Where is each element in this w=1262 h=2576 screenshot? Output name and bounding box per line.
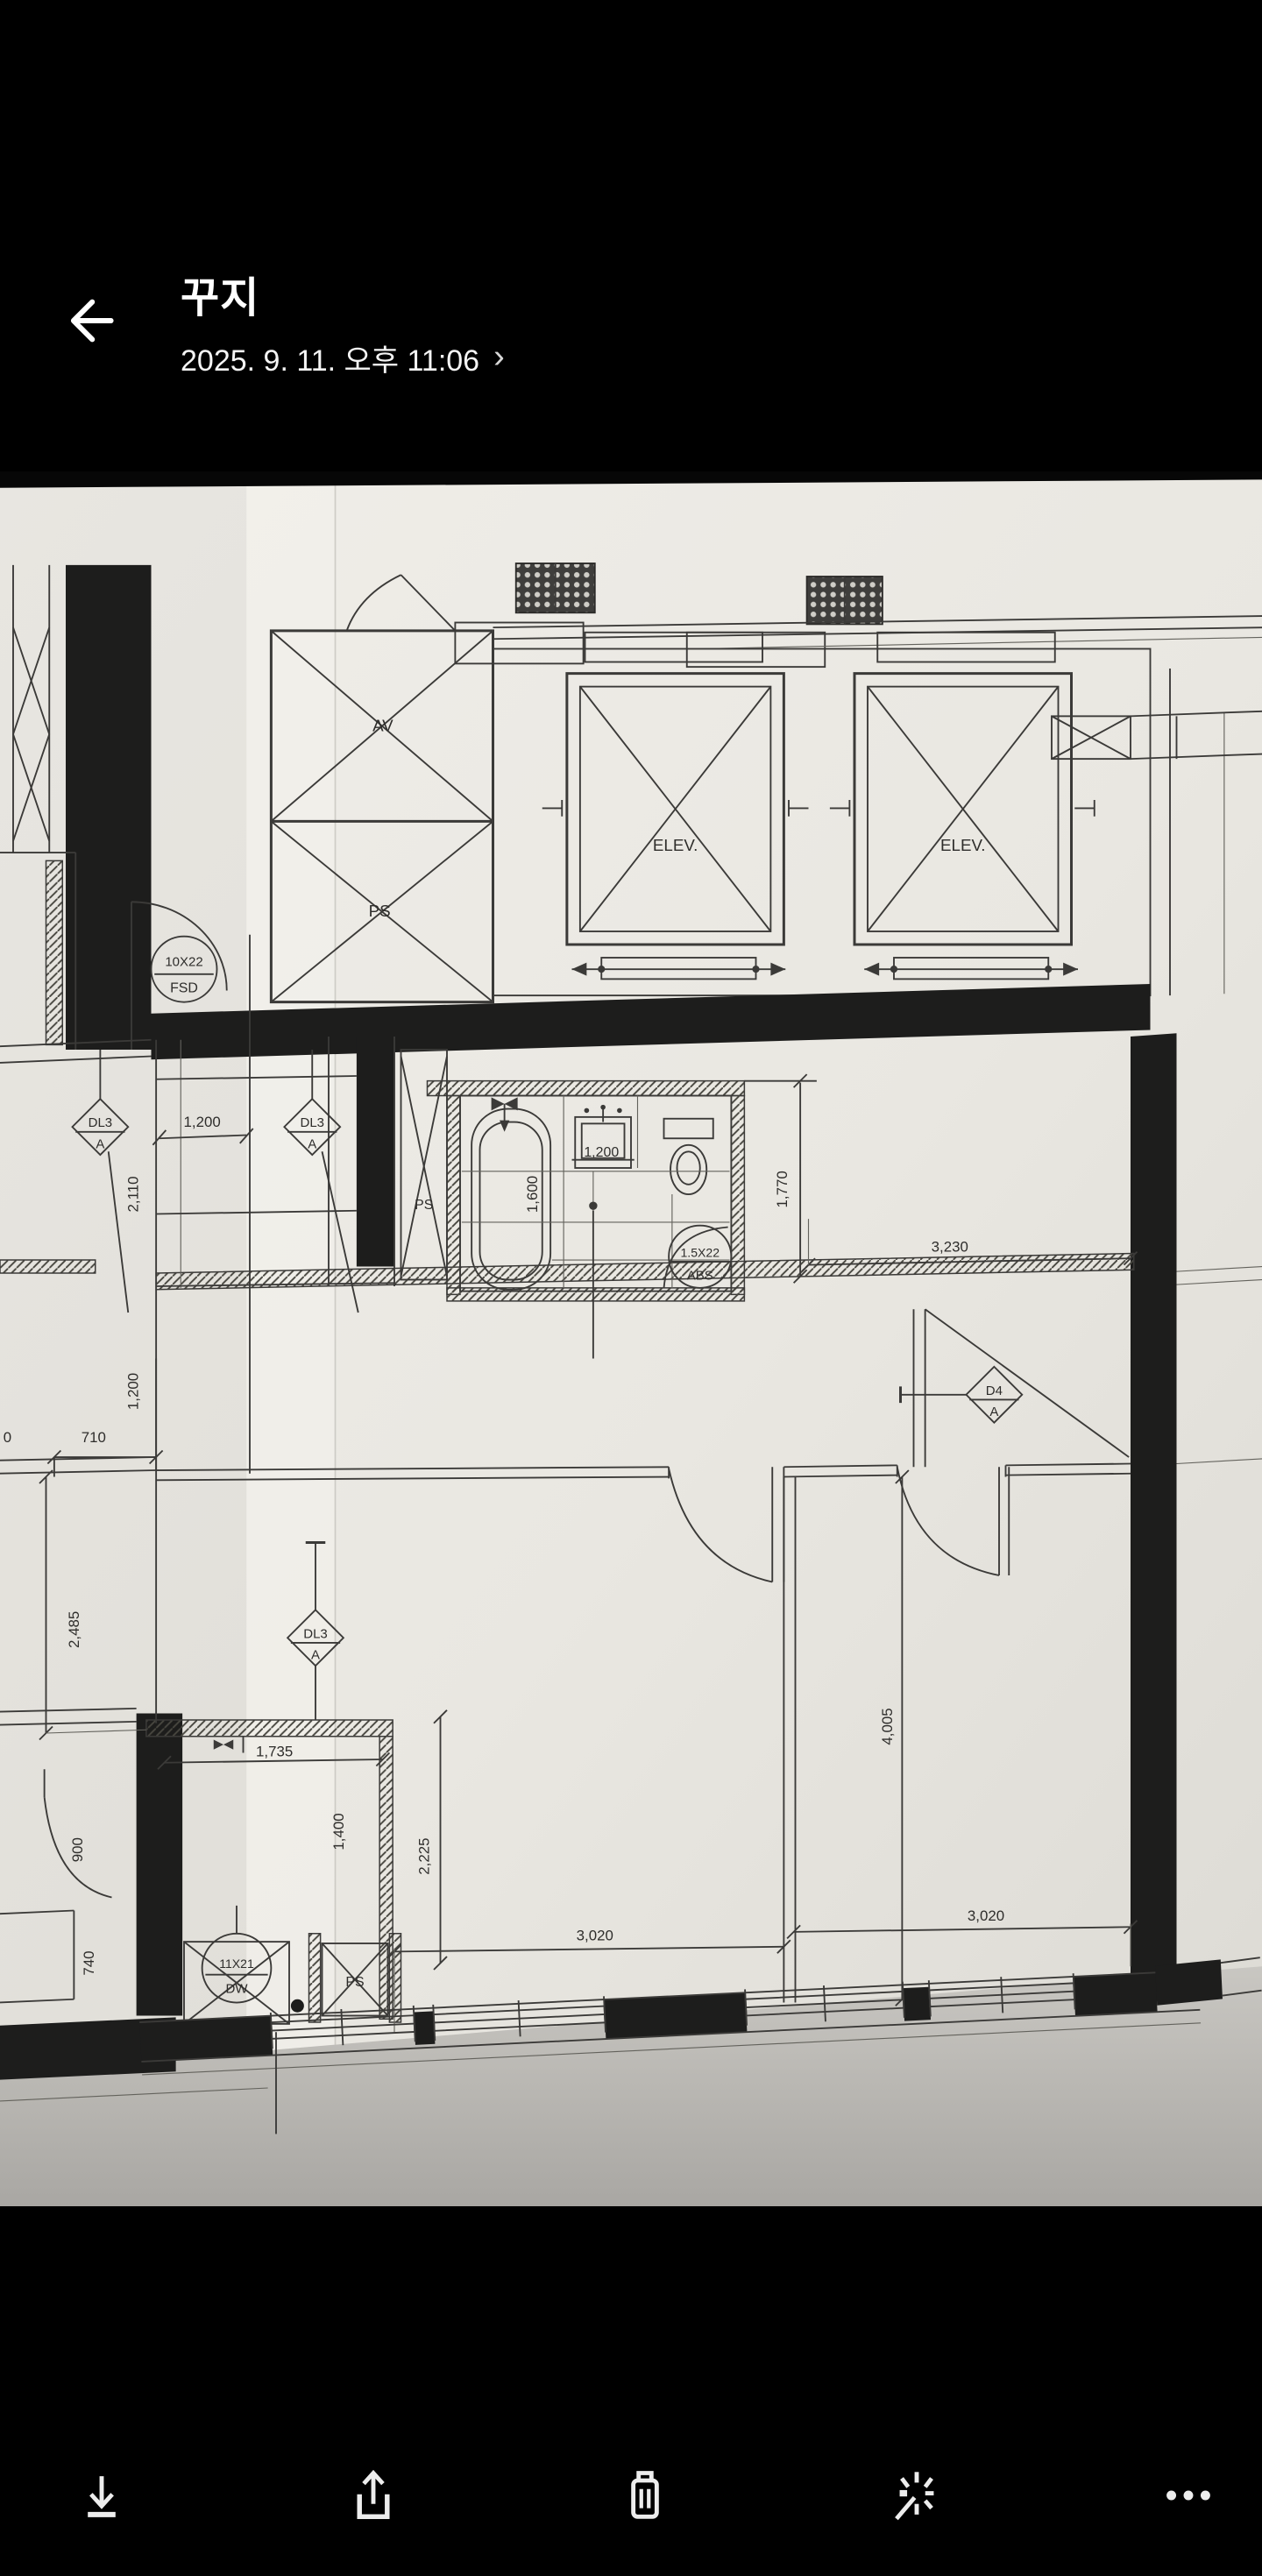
abs-size: 1.5X22 (680, 1245, 720, 1259)
room-label-elev2: ELEV. (940, 836, 985, 854)
bottom-toolbar (0, 2446, 1262, 2544)
dl3-1-type: A (96, 1137, 104, 1152)
dl3-3-type: A (311, 1648, 320, 1663)
room-label-ps: PS (369, 902, 391, 920)
dim-740: 740 (81, 1950, 97, 1975)
share-icon (344, 2466, 403, 2525)
dim-1735: 1,735 (256, 1743, 293, 1759)
dim-1770: 1,770 (774, 1171, 791, 1207)
dl3-3-code: DL3 (303, 1626, 328, 1641)
header: 꾸지 2025. 9. 11. 오후 11:06 › (0, 131, 1262, 307)
dw-label: DW (226, 1981, 249, 1996)
dim-3020-left: 3,020 (577, 1927, 613, 1943)
back-button[interactable] (63, 287, 130, 354)
dim-4005: 4,005 (879, 1708, 896, 1744)
dw-size: 11X21 (219, 1957, 254, 1971)
photo-date-text: 2025. 9. 11. 오후 11:06 (181, 336, 479, 379)
ai-edit-button[interactable] (887, 2466, 946, 2525)
ps-bottom-label: PS (345, 1975, 364, 1990)
chevron-right-icon: › (493, 342, 505, 372)
ai-sparkle-icon (887, 2466, 946, 2525)
photo-date[interactable]: 2025. 9. 11. 오후 11:06 › (181, 336, 505, 379)
d4-code: D4 (986, 1384, 1003, 1398)
ps-shaft-label: PS (415, 1198, 433, 1213)
download-icon (72, 2466, 131, 2525)
dl3-2-code: DL3 (300, 1115, 324, 1130)
dim-1200-left: 1,200 (125, 1373, 142, 1410)
dim-900: 900 (69, 1837, 86, 1862)
dl3-1-code: DL3 (89, 1115, 113, 1130)
download-button[interactable] (72, 2466, 131, 2525)
dim-1200-corridor: 1,200 (184, 1114, 221, 1130)
room-label-elev1: ELEV. (653, 836, 698, 854)
dim-3230: 3,230 (932, 1239, 968, 1256)
right-wall (1131, 1033, 1177, 2002)
room-label-av: AV (372, 716, 393, 734)
dim-710: 710 (82, 1429, 106, 1446)
arrow-left-icon (63, 343, 130, 357)
dim-2110: 2,110 (125, 1177, 142, 1213)
page-title: 꾸지 (181, 263, 505, 324)
dl3-2-type: A (308, 1137, 316, 1152)
share-button[interactable] (344, 2466, 403, 2525)
photo-viewer[interactable]: AV PS ELEV. ELEV. (0, 471, 1262, 2206)
dim-1200-bath: 1,200 (584, 1145, 619, 1160)
more-button[interactable] (1159, 2466, 1218, 2525)
dim-1600: 1,600 (524, 1176, 541, 1213)
fsd-size: 10X22 (165, 954, 202, 969)
trash-icon (615, 2466, 675, 2525)
dim-1400: 1,400 (330, 1813, 347, 1850)
fsd-label: FSD (170, 980, 198, 995)
d4-type: A (989, 1405, 998, 1419)
delete-button[interactable] (615, 2466, 675, 2525)
dim-2485: 2,485 (66, 1611, 82, 1648)
dim-partial0: 0 (4, 1429, 11, 1446)
dim-3020-right: 3,020 (968, 1907, 1004, 1924)
abs-label: ABS (687, 1269, 713, 1284)
more-icon (1159, 2466, 1218, 2525)
dim-2225: 2,225 (415, 1838, 432, 1875)
